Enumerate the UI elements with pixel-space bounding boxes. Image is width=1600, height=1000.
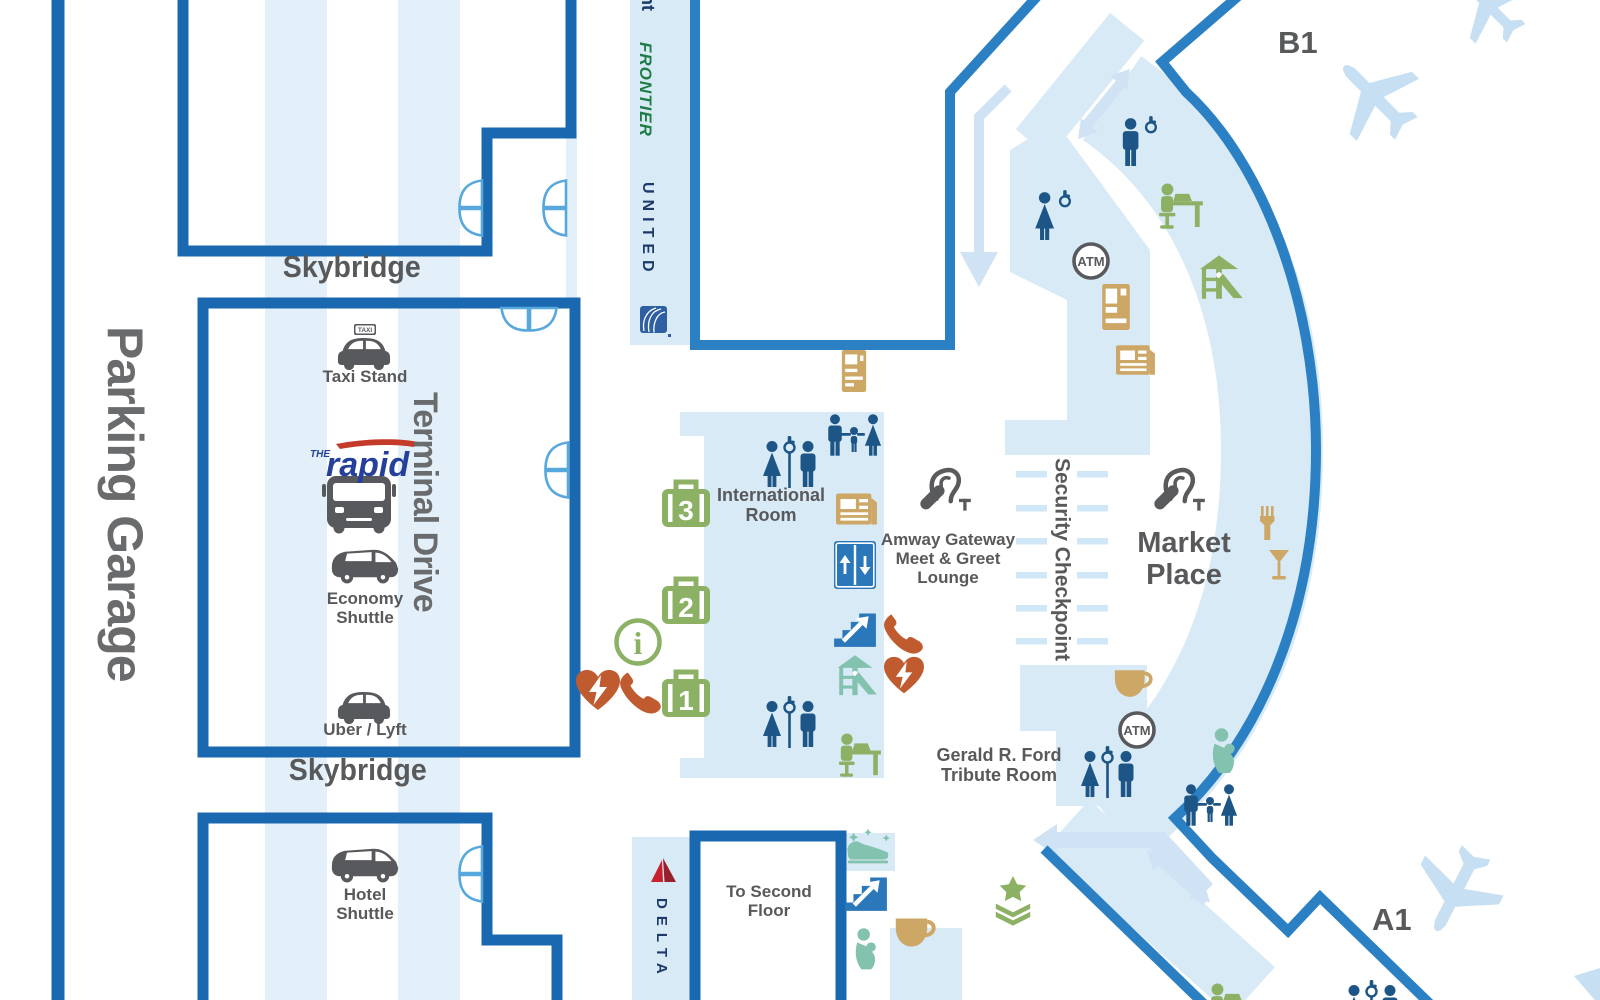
courtesy-phone-icon xyxy=(620,673,661,714)
checkin-hall-wall xyxy=(695,0,1043,345)
door-icon xyxy=(460,847,483,902)
newspaper-icon xyxy=(836,494,877,525)
svg-text:1: 1 xyxy=(678,685,694,716)
nursing-room-icon xyxy=(856,928,876,969)
parking-garage-wall xyxy=(57,0,59,1000)
information-icon: i xyxy=(617,621,660,664)
taxi-icon: TAXI xyxy=(338,324,390,370)
airplane-icon xyxy=(1397,832,1515,950)
international-room-label: InternationalRoom xyxy=(706,485,836,525)
rapid-name-text: rapid xyxy=(326,446,410,484)
economy-shuttle-label: EconomyShuttle xyxy=(302,589,428,627)
economy-shuttle-icon xyxy=(332,550,398,584)
parking-garage-label: Parking Garage xyxy=(97,326,153,726)
skybridge-north-label: Skybridge xyxy=(280,250,424,285)
door-icon xyxy=(546,443,569,498)
airport-terminal-map: TAXI THE rapid 3 2 1 i xyxy=(0,0,1600,1000)
svg-text:ATM: ATM xyxy=(1077,254,1104,269)
elevator-icon xyxy=(834,541,876,589)
airline-united-label: UNITED xyxy=(638,182,656,278)
airplane-icon xyxy=(1313,35,1437,159)
atm-icon: ATM xyxy=(1120,713,1154,747)
north-curb-island xyxy=(183,0,571,251)
airplane-icon xyxy=(1440,0,1542,59)
stairs-up-icon xyxy=(845,875,887,911)
down-guide-arrow xyxy=(979,88,1008,252)
gate-a1-label: A1 xyxy=(1372,903,1412,938)
gerald-ford-room-label: Gerald R. FordTribute Room xyxy=(929,745,1069,785)
airline-frontier-label: FRONTIER xyxy=(636,42,655,137)
security-checkpoint-label: Security Checkpoint xyxy=(1050,458,1074,668)
the-rapid-logo: THE rapid xyxy=(310,439,418,484)
rapid-bus-icon xyxy=(322,476,396,534)
market-place-label: MarketPlace xyxy=(1119,528,1249,592)
airline-partial-label: nt xyxy=(638,0,658,11)
svg-text:i: i xyxy=(634,625,643,661)
hotel-shuttle-icon xyxy=(332,849,398,883)
airplanes xyxy=(1313,0,1600,1000)
door-icon xyxy=(544,181,567,236)
uber-lyft-label: Uber / Lyft xyxy=(302,720,428,739)
military-lounge-icon xyxy=(996,876,1030,926)
to-second-floor-label: To Second Floor xyxy=(706,882,832,920)
hotel-shuttle-label: HotelShuttle xyxy=(302,885,428,923)
svg-text:2: 2 xyxy=(678,592,694,623)
checkin-kiosk-icon xyxy=(842,350,866,392)
amway-lounge-label: Amway GatewayMeet & GreetLounge xyxy=(878,530,1018,587)
hearing-loop-icon xyxy=(918,470,971,512)
aed-icon xyxy=(884,657,924,693)
international-room-zone xyxy=(680,412,884,778)
courtesy-phone-icon xyxy=(884,615,923,654)
vending-machine-icon xyxy=(1102,284,1130,330)
svg-text:ATM: ATM xyxy=(1123,723,1150,738)
skybridge-south-label: Skybridge xyxy=(286,753,430,788)
atm-icon: ATM xyxy=(1074,244,1108,278)
airplane-wingtip xyxy=(1574,968,1600,1000)
hearing-loop-icon xyxy=(1152,470,1205,512)
down-guide-arrowhead xyxy=(960,252,998,287)
door-icon xyxy=(502,308,557,331)
newspaper-icon xyxy=(1116,345,1155,374)
taxi-sign-text: TAXI xyxy=(358,327,373,334)
entrance-doors xyxy=(460,181,569,902)
airline-delta-label: DELTA xyxy=(652,898,669,981)
door-icon xyxy=(460,181,483,236)
taxi-stand-label: Taxi Stand xyxy=(302,367,428,386)
restroom-accessible-icon xyxy=(1345,980,1398,1000)
aed-icon xyxy=(576,670,620,710)
gate-b1-label: B1 xyxy=(1278,26,1318,61)
svg-text:3: 3 xyxy=(678,495,694,526)
